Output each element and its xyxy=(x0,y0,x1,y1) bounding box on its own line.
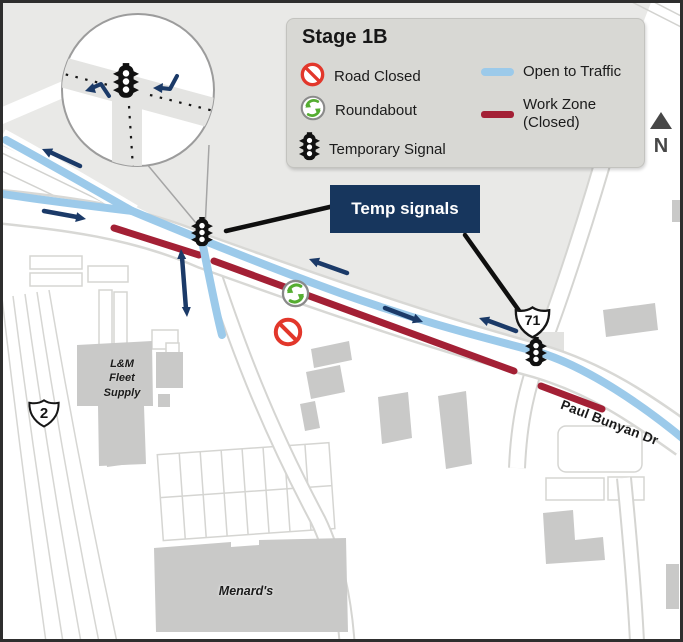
legend-item-work-zone: Work Zone (Closed) xyxy=(481,96,615,133)
legend-item-label: Roundabout xyxy=(335,102,417,119)
legend: Stage 1B Road Closed Roundabout Temporar… xyxy=(286,18,645,168)
roundabout-icon xyxy=(283,281,308,306)
work-zone-line xyxy=(481,111,514,118)
temp-signals-callout: Temp signals xyxy=(330,185,480,233)
temporary-signal-icon xyxy=(299,132,320,166)
callout-label: Temp signals xyxy=(351,199,458,219)
place-label-lm-fleet-supply: L&M Fleet Supply xyxy=(88,357,156,400)
legend-item-label: Road Closed xyxy=(334,68,421,85)
open-to-traffic-line xyxy=(481,68,514,76)
legend-item-roundabout: Roundabout xyxy=(300,95,417,125)
north-label: N xyxy=(646,136,676,156)
legend-item-temporary-signal: Temporary Signal xyxy=(299,132,446,166)
legend-title: Stage 1B xyxy=(302,26,388,49)
north-arrow-icon xyxy=(649,112,673,130)
construction-staging-map: Stage 1B Road Closed Roundabout Temporar… xyxy=(0,0,683,642)
road-closed-icon xyxy=(276,320,300,344)
legend-item-label: Work Zone (Closed) xyxy=(523,96,615,133)
legend-item-label: Open to Traffic xyxy=(523,63,621,80)
place-label-menards: Menard's xyxy=(198,584,294,598)
legend-item-label: Temporary Signal xyxy=(329,141,446,158)
road-closed-icon xyxy=(300,62,325,91)
route-shield-number: 2 xyxy=(27,405,61,422)
legend-item-road-closed: Road Closed xyxy=(300,62,421,91)
roundabout-icon xyxy=(300,95,326,125)
route-shield-number: 71 xyxy=(513,312,552,328)
north-arrow: N xyxy=(646,112,676,156)
legend-item-open-to-traffic: Open to Traffic xyxy=(481,63,621,80)
